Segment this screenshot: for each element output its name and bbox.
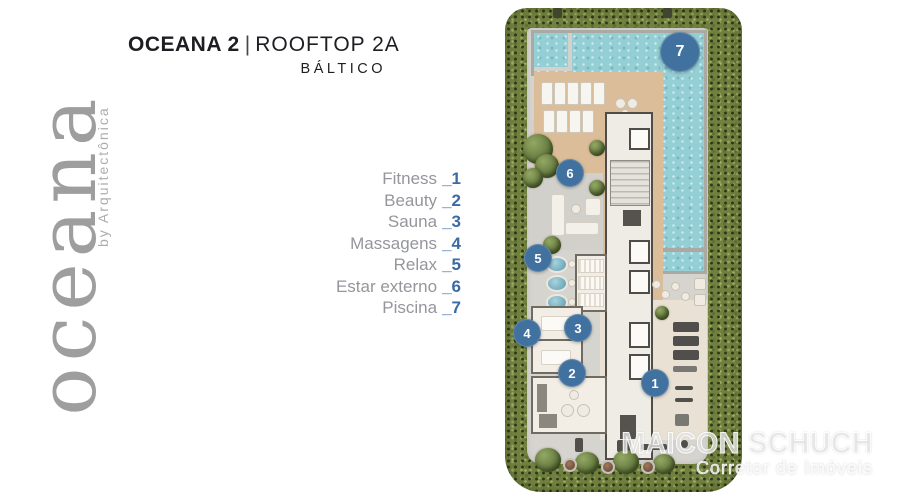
legend-underscore: _: [442, 212, 451, 231]
plant-pot: [601, 460, 615, 474]
planter-bush: [575, 452, 599, 474]
beauty-counter: [537, 384, 547, 412]
hedge-notch: [663, 8, 672, 18]
lounge-chair: [593, 82, 605, 105]
marker-number: 1: [651, 376, 658, 391]
legend-number: _1: [442, 169, 461, 188]
lounge-chair: [543, 110, 555, 133]
floor-plan: 1 2 3 4 5 6 7: [505, 8, 742, 492]
planter-bush: [653, 454, 675, 474]
marker-number: 6: [566, 166, 573, 181]
marketing-floorplan-page: oceana by Arquitectônica OCEANA 2|ROOFTO…: [0, 0, 900, 501]
planter-bush: [613, 450, 639, 474]
plan-marker-6-estar-externo: 6: [556, 159, 584, 187]
legend-label: Estar externo: [336, 277, 437, 296]
legend-number-value: 4: [452, 234, 461, 253]
side-table: [571, 204, 581, 214]
beauty-chair: [577, 404, 590, 417]
beauty-table: [569, 390, 579, 400]
plan-marker-2-beauty: 2: [558, 359, 586, 387]
spa-divider: [660, 248, 704, 252]
brand-wordmark: oceana: [32, 88, 104, 420]
pool-stool: [652, 280, 661, 289]
planter-bush: [655, 306, 669, 320]
elevator-cell: [629, 240, 650, 264]
building-core: [605, 112, 653, 460]
legend-underscore: _: [442, 169, 451, 188]
legend-label: Relax: [394, 255, 437, 274]
legend-number-value: 1: [452, 169, 461, 188]
legend-label: Piscina: [382, 298, 437, 317]
legend-underscore: _: [442, 277, 451, 296]
lounge-chair: [569, 110, 581, 133]
legend-label: Fitness: [382, 169, 437, 188]
title-line: OCEANA 2|ROOFTOP 2A: [128, 33, 386, 57]
legend-label: Massagens: [350, 234, 437, 253]
planter-bush: [523, 168, 543, 188]
page-title: OCEANA 2|ROOFTOP 2A BÁLTICO: [128, 33, 386, 77]
elevator-cell: [629, 128, 650, 150]
legend-item-fitness: Fitness_1: [280, 168, 461, 190]
legend-number: _2: [442, 191, 461, 210]
relax-tub: [546, 275, 568, 292]
elevator-cell: [629, 270, 650, 294]
side-table: [694, 294, 706, 306]
storage-box: [620, 415, 636, 439]
legend-number: _7: [442, 298, 461, 317]
sauna-bench: [578, 259, 604, 273]
outdoor-armchair: [585, 198, 601, 216]
legend-item-piscina: Piscina_7: [280, 297, 461, 319]
restroom-cell: [629, 322, 650, 348]
service-shaft: [623, 210, 641, 226]
amenities-legend: Fitness_1 Beauty_2 Sauna_3 Massagens_4 R…: [280, 168, 461, 319]
plan-marker-4-massagens: 4: [513, 319, 541, 347]
legend-number: _5: [442, 255, 461, 274]
marker-number: 4: [523, 326, 530, 341]
side-table: [694, 278, 706, 290]
title-unit-name: ROOFTOP 2A: [255, 33, 400, 56]
planter-bush: [589, 140, 605, 156]
gym-machine: [675, 414, 689, 426]
lounge-chair: [580, 82, 592, 105]
treadmill: [673, 336, 699, 346]
legend-label: Sauna: [388, 212, 437, 231]
legend-underscore: _: [442, 234, 451, 253]
pool-stool: [681, 292, 690, 301]
hedge-notch: [553, 8, 562, 18]
outdoor-sofa: [551, 194, 565, 236]
legend-item-sauna: Sauna_3: [280, 211, 461, 233]
marker-number: 7: [676, 43, 685, 61]
dumbbells: [675, 398, 693, 402]
legend-item-beauty: Beauty_2: [280, 190, 461, 212]
storage-cabinet: [539, 414, 557, 428]
sauna-bench: [578, 293, 604, 307]
plan-marker-5-relax: 5: [524, 244, 552, 272]
dumbbell-rack: [673, 366, 697, 372]
marker-number: 2: [568, 366, 575, 381]
plan-marker-7-piscina: 7: [660, 32, 700, 72]
barbell-rack: [641, 444, 667, 450]
legend-item-massagens: Massagens_4: [280, 233, 461, 255]
legend-number-value: 2: [452, 191, 461, 210]
pool-stool: [661, 290, 670, 299]
legend-label: Beauty: [384, 191, 437, 210]
legend-number: _6: [442, 277, 461, 296]
planter-bush: [535, 448, 561, 472]
treadmill: [673, 322, 699, 332]
marker-number: 3: [574, 321, 581, 336]
title-subtitle: BÁLTICO: [128, 61, 386, 77]
legend-underscore: _: [442, 191, 451, 210]
dumbbells: [675, 386, 693, 390]
lounge-chair: [554, 82, 566, 105]
sauna-room: [575, 254, 607, 312]
beauty-chair: [561, 404, 574, 417]
lounge-chair: [556, 110, 568, 133]
sauna-bench: [578, 276, 604, 290]
legend-number-value: 6: [452, 277, 461, 296]
lounge-chair: [567, 82, 579, 105]
planter-bush: [589, 180, 605, 196]
outdoor-sofa: [565, 222, 599, 235]
treadmill: [673, 350, 699, 360]
exercise-bike: [575, 438, 583, 452]
title-divider: |: [245, 33, 250, 56]
plan-marker-1-fitness: 1: [641, 369, 669, 397]
legend-number-value: 7: [452, 298, 461, 317]
lounge-chair: [541, 82, 553, 105]
legend-number: _4: [442, 234, 461, 253]
marker-number: 5: [534, 251, 541, 266]
deck-chair: [627, 98, 638, 109]
legend-item-estar-externo: Estar externo_6: [280, 276, 461, 298]
legend-number-value: 5: [452, 255, 461, 274]
staircase: [610, 160, 650, 206]
brand-byline: by Arquitectônica: [95, 97, 111, 247]
legend-number-value: 3: [452, 212, 461, 231]
plant-pot: [641, 460, 655, 474]
title-project-name: OCEANA 2: [128, 33, 240, 56]
plan-marker-3-sauna: 3: [564, 314, 592, 342]
pool-stool: [671, 282, 680, 291]
legend-underscore: _: [442, 255, 451, 274]
kettlebell: [681, 440, 688, 448]
kids-pool-divider: [534, 33, 572, 71]
legend-underscore: _: [442, 298, 451, 317]
deck-chair: [615, 98, 626, 109]
lounge-chair: [582, 110, 594, 133]
plant-pot: [563, 458, 577, 472]
legend-item-relax: Relax_5: [280, 254, 461, 276]
legend-number: _3: [442, 212, 461, 231]
